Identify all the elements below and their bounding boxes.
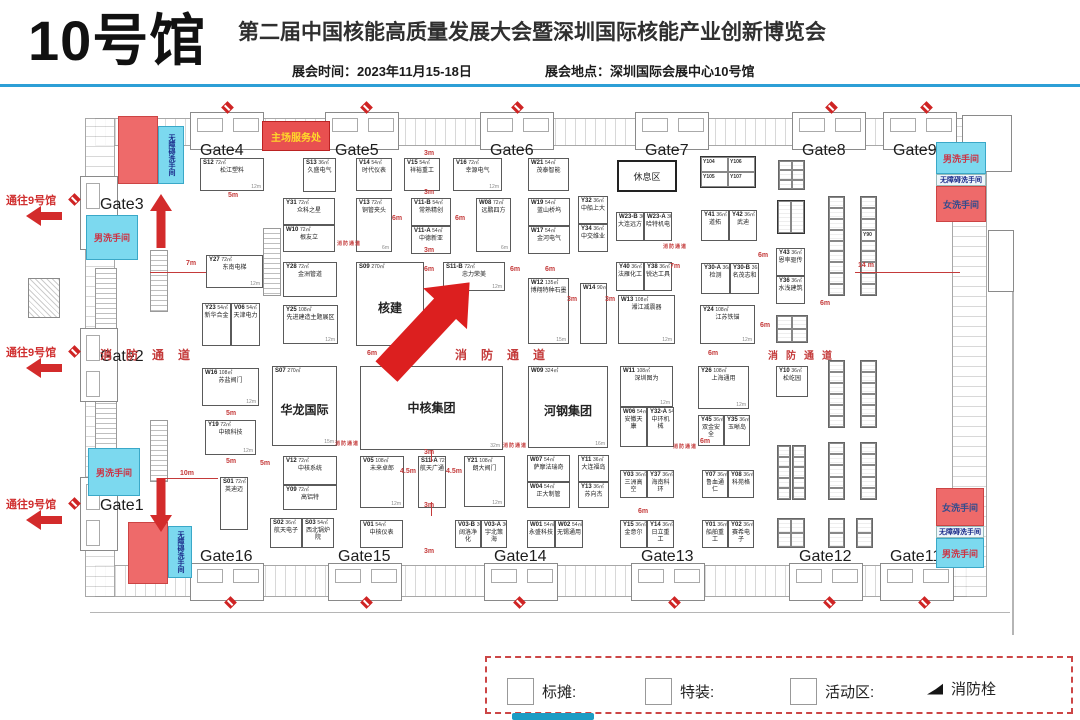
small-booth-grid: [777, 445, 791, 500]
booth-S01: S01 72㎡英迪迈: [220, 477, 248, 530]
fire-hydrant-legend-icon: [927, 683, 943, 695]
booth-Y03: Y03 36㎡三洲高空: [620, 470, 647, 498]
dimension-line: [150, 272, 206, 273]
small-booth-grid: [860, 442, 877, 500]
booth-Y07: Y07 36㎡鲁血通仁: [702, 470, 728, 498]
exit-left-arrow-icon: [26, 510, 62, 530]
booth-Y37: Y37 36㎡海南科环: [647, 470, 674, 498]
small-booth-grid: [828, 518, 845, 548]
booth-V03-A: V03-A 36㎡宇北策海: [481, 520, 507, 548]
fire-lane-label: 消防通道: [673, 443, 697, 450]
gate-label-gate13: Gate13: [641, 548, 693, 566]
small-booth-grid: [828, 442, 845, 500]
booth-W13: W13 108㎡湘江减震器12m: [618, 295, 675, 344]
booth-W04: W04 54㎡正大制管: [527, 482, 570, 508]
outer-bottom-line: [90, 612, 1010, 613]
booth-S03: S03 54㎡西北锅炉院: [302, 518, 334, 548]
booth-W10: W10 72㎡根友立: [283, 225, 335, 252]
booth-W19: W19 54㎡蓝山桥坞: [528, 198, 570, 226]
booth-W17: W17 54㎡金河电气: [528, 226, 570, 254]
booth-W08: W08 72㎡远鹏四方6m: [476, 198, 511, 252]
booth-W06: W06 54㎡安徽天康: [620, 407, 647, 447]
booth-V12: V12 72㎡中核系统: [283, 456, 337, 485]
stairs: [150, 250, 168, 312]
fire-lane-label: 消防通道: [455, 346, 559, 363]
exit-diamond-icon: [68, 193, 81, 206]
dimension-marker: 6m: [638, 508, 648, 515]
booth-Y11: Y11 36㎡大连福岛: [578, 455, 609, 482]
restroom-无障碍洗手间: 无障碍洗手间: [168, 526, 192, 578]
header-divider: [0, 84, 1080, 87]
dimension-marker: 6m: [510, 266, 520, 273]
booth-W23-B: W23-B 36㎡大连远方: [616, 212, 644, 241]
gate-door: [880, 563, 954, 601]
booth-Y43: Y43 36㎡恩率驱传: [776, 248, 805, 276]
booth-V14: V14 54㎡时代仪表: [356, 158, 392, 191]
gate-label-gate8: Gate8: [802, 142, 846, 160]
right-room: [988, 230, 1014, 292]
gate-door: [190, 563, 264, 601]
booth-Y28: Y28 72㎡金洲管道: [283, 262, 337, 297]
dimension-marker: 5m: [228, 192, 238, 199]
small-booth-grid: Y90: [860, 196, 877, 296]
dimension-marker: 3m: [424, 189, 434, 196]
gate-label-gate1: Gate1: [100, 497, 144, 515]
booth-swatch-icon: [790, 678, 817, 705]
restroom-无障碍洗手间: 无障碍洗手间: [158, 126, 184, 184]
booth-W09: W09 324㎡河钢集团16m: [528, 366, 608, 448]
restroom-女洗手间: 女洗手间: [936, 186, 986, 222]
fire-lane-label: 消防通道: [768, 347, 840, 362]
outer-right-line: [1012, 255, 1014, 635]
dimension-marker: 6m: [700, 438, 710, 445]
dimension-marker: 3m: [424, 150, 434, 157]
cropped-bottom-bar: [512, 713, 594, 720]
dimension-marker: 3m: [424, 548, 434, 555]
small-booth-grid: [776, 315, 808, 343]
booth-V13: V13 72㎡铜管夹头6m: [356, 198, 392, 252]
dimension-marker: 7m: [670, 263, 680, 270]
booth-S02: S02 36㎡航天电子: [270, 518, 302, 548]
booth-Y14: Y14 36㎡日立重工: [647, 520, 674, 548]
exit-diamond-icon: [68, 497, 81, 510]
booth-Y21: Y21 108㎡朗大阀门12m: [464, 456, 505, 507]
exit-diamond-icon: [68, 345, 81, 358]
booth-W11: W11 108㎡深圳图为12m: [620, 366, 673, 407]
small-booth-grid: [860, 360, 877, 428]
legend-label: 特装:: [680, 681, 714, 702]
booth-S07: S07 270㎡华龙国际15m: [272, 366, 337, 446]
dimension-line: [431, 502, 432, 516]
expo-title: 第二届中国核能高质量发展大会暨深圳国际核能产业创新博览会: [238, 16, 826, 46]
gate-door: [484, 563, 558, 601]
exit-left-arrow-icon: [26, 358, 62, 378]
dimension-marker: 4.5m: [400, 468, 416, 475]
booth-Y42: Y42 36㎡武迪: [729, 210, 757, 241]
booth-S13: S13 36㎡久盛电气: [303, 158, 336, 192]
dimension-marker: 4.5m: [446, 468, 462, 475]
dimension-line: [855, 272, 960, 273]
dimension-marker: 3m: [605, 296, 615, 303]
booth-Y32-A: Y32-A 54㎡中环机械: [647, 407, 674, 447]
dimension-marker: 3m: [567, 296, 577, 303]
gate-label-gate14: Gate14: [494, 548, 546, 566]
dimension-marker: 6m: [392, 215, 402, 222]
legend-box: 标摊:特装:活动区:消防栓: [485, 656, 1073, 714]
booth-W07: W07 54㎡萨摩法瑞奇: [527, 455, 570, 482]
gate-door: [328, 563, 402, 601]
dimension-marker: 6m: [760, 322, 770, 329]
booth-W23-A: W23-A 36㎡哈特机电: [644, 212, 672, 241]
booth-Y19: Y19 72㎡中硕科技12m: [205, 420, 256, 455]
booth-W16: W16 108㎡苏盐阀门12m: [202, 368, 259, 406]
floor-plan-page: 10号馆 第二届中国核能高质量发展大会暨深圳国际核能产业创新博览会 展会时间：2…: [0, 0, 1080, 720]
booth-Y38: Y38 36㎡锐达工具: [644, 262, 672, 291]
fire-lane-label: 消防通道: [663, 243, 687, 250]
small-booth-grid: [792, 445, 806, 500]
gate-door: [789, 563, 863, 601]
dimension-marker: 6m: [820, 300, 830, 307]
dimension-marker: 5m: [226, 458, 236, 465]
booth-W02: W02 54㎡无锡通用: [555, 520, 583, 548]
booth-V15: V15 54㎡祥裕重工: [404, 158, 440, 191]
dimension-marker: 5m: [226, 410, 236, 417]
booth-Y35: Y35 36㎡玉晰岛: [724, 415, 750, 446]
legend-label: 标摊:: [542, 681, 576, 702]
dimension-marker: 10m: [180, 470, 194, 477]
booth-Y40: Y40 36㎡法雁化工: [616, 262, 644, 291]
booth-Y24: Y24 108㎡江苏铁锚12m: [700, 305, 755, 344]
booth-Y09: Y09 72㎡高铝特: [283, 485, 337, 510]
small-booth-grid: Y104Y106Y105Y107: [700, 156, 756, 188]
booth-V01: V01 54㎡中核仪表: [360, 520, 403, 548]
exit-left-arrow-icon: [26, 206, 62, 226]
booth-V11-B: V11-B 54㎡常熟精创: [411, 198, 451, 226]
dimension-marker: 6m: [455, 215, 465, 222]
booth-Y34: Y34 36㎡中交维业: [578, 224, 608, 252]
small-booth-grid: [856, 518, 873, 548]
booth-swatch-icon: [645, 678, 672, 705]
booth-Y26: Y26 108㎡上海通用12m: [698, 366, 749, 409]
booth-V03-B: V03-B 36㎡阔洛净化: [455, 520, 481, 548]
gate-label-gate3: Gate3: [100, 196, 144, 214]
booth-Y32: Y32 36㎡中船上大: [578, 196, 608, 224]
small-booth-grid: [828, 196, 845, 296]
legend-label: 活动区:: [825, 681, 874, 702]
booth-Y15: Y15 36㎡金意尔: [620, 520, 647, 548]
small-booth-grid: [828, 360, 845, 428]
booth-W14: W14 90㎡: [580, 283, 607, 344]
booth-Y25: Y25 108㎡先进建造主题展区12m: [283, 305, 338, 344]
up-arrow-icon: [150, 194, 172, 248]
restroom-男洗手间: 男洗手间: [936, 538, 984, 568]
dimension-marker: 6m: [758, 252, 768, 259]
small-booth-grid: [777, 518, 805, 548]
stairs: [263, 228, 281, 296]
expo-place: 展会地点：深圳国际会展中心10号馆: [545, 61, 754, 80]
booth-Y08: Y08 36㎡科苑格: [728, 470, 754, 498]
hall-number: 10号馆: [28, 0, 206, 77]
gate-label-gate16: Gate16: [200, 548, 252, 566]
stairs: [150, 420, 168, 482]
gate-label-gate12: Gate12: [799, 548, 851, 566]
legend-item-3: 消防栓: [927, 678, 996, 699]
booth-W01: W01 54㎡永盛科技: [527, 520, 555, 548]
rest-area: 休息区: [617, 160, 677, 192]
booth-Y31: Y31 72㎡众科之星: [283, 198, 335, 225]
fire-lane-label: 消防通道: [337, 240, 361, 247]
dimension-line: [431, 450, 432, 462]
booth-Y01: Y01 36㎡船舶重工: [702, 520, 728, 548]
gate-label-gate11: Gate11: [890, 548, 941, 566]
fire-lane-label: 消防通道: [100, 346, 204, 363]
fire-lane-label: 消防通道: [503, 442, 527, 449]
restroom-男洗手间: 男洗手间: [88, 448, 140, 496]
booth-Y30-A: Y30-A 36㎡检测: [701, 263, 730, 294]
restroom-男洗手间: 男洗手间: [86, 215, 138, 260]
legend-item-1: 特装:: [645, 678, 714, 705]
booth-Y36: Y36 36㎡水浅建筑: [776, 276, 805, 304]
legend-item-2: 活动区:: [790, 678, 874, 705]
booth-W12: W12 135㎡博翔特种石墨15m: [528, 278, 569, 344]
booth-S11-A: S11-A 72㎡航天广通: [418, 456, 446, 508]
dimension-marker: 3m: [424, 247, 434, 254]
booth-Y10: Y10 36㎡松屹园: [776, 366, 808, 397]
restroom-男洗手间: 男洗手间: [936, 142, 986, 174]
dimension-marker: 3m: [424, 502, 434, 509]
dimension-marker: 6m: [424, 266, 434, 273]
booth-V05: V05 108㎡未来卓郎12m: [360, 456, 404, 508]
booth-Y41: Y41 36㎡道拓: [701, 210, 729, 241]
gate-label-gate7: Gate7: [645, 142, 689, 160]
hatched-block: [28, 278, 60, 318]
booth-V16: V16 72㎡幸源电气12m: [453, 158, 502, 191]
dimension-marker: 7m: [186, 260, 196, 267]
booth-中核集团: 中核集团32m: [360, 366, 503, 450]
booth-Y23: Y23 54㎡新华合金: [202, 303, 231, 346]
booth-Y02: Y02 36㎡赛希电子: [728, 520, 754, 548]
dimension-marker: 6m: [545, 266, 555, 273]
booth-W21: W21 54㎡茂泰智能: [528, 158, 569, 191]
down-arrow-icon: [150, 478, 172, 532]
booth-V06: V06 54㎡天津电力: [231, 303, 260, 346]
dimension-marker: 3m: [424, 449, 434, 456]
gate-label-gate9: Gate9: [893, 142, 937, 160]
restroom-女洗手间: 女洗手间: [936, 488, 984, 526]
gate-door: [631, 563, 705, 601]
restroom-无障碍洗手间: 无障碍洗手间: [936, 174, 986, 186]
booth-swatch-icon: [507, 678, 534, 705]
restroom-无障碍洗手间: 无障碍洗手间: [936, 526, 984, 538]
service-desk: 主场服务处: [262, 121, 330, 151]
dimension-marker: 5m: [260, 460, 270, 467]
booth-Y27: Y27 72㎡东南电梯12m: [206, 255, 263, 288]
dimension-marker: 6m: [708, 350, 718, 357]
legend-label: 消防栓: [951, 678, 996, 699]
restroom-block: [118, 116, 158, 184]
dimension-marker: 14 m: [858, 262, 874, 269]
booth-Y13: Y13 36㎡苏向杰: [578, 482, 609, 508]
small-booth-grid: [777, 200, 805, 234]
fire-lane-label: 消防通道: [335, 440, 359, 447]
gate-label-gate15: Gate15: [338, 548, 390, 566]
small-booth-grid: [778, 160, 805, 190]
legend-item-0: 标摊:: [507, 678, 576, 705]
booth-Y30-B: Y30-B 36㎡名茂志和: [730, 263, 759, 294]
booth-S12: S12 72㎡松江塑料12m: [200, 158, 264, 191]
expo-time: 展会时间：2023年11月15-18日: [292, 61, 472, 80]
